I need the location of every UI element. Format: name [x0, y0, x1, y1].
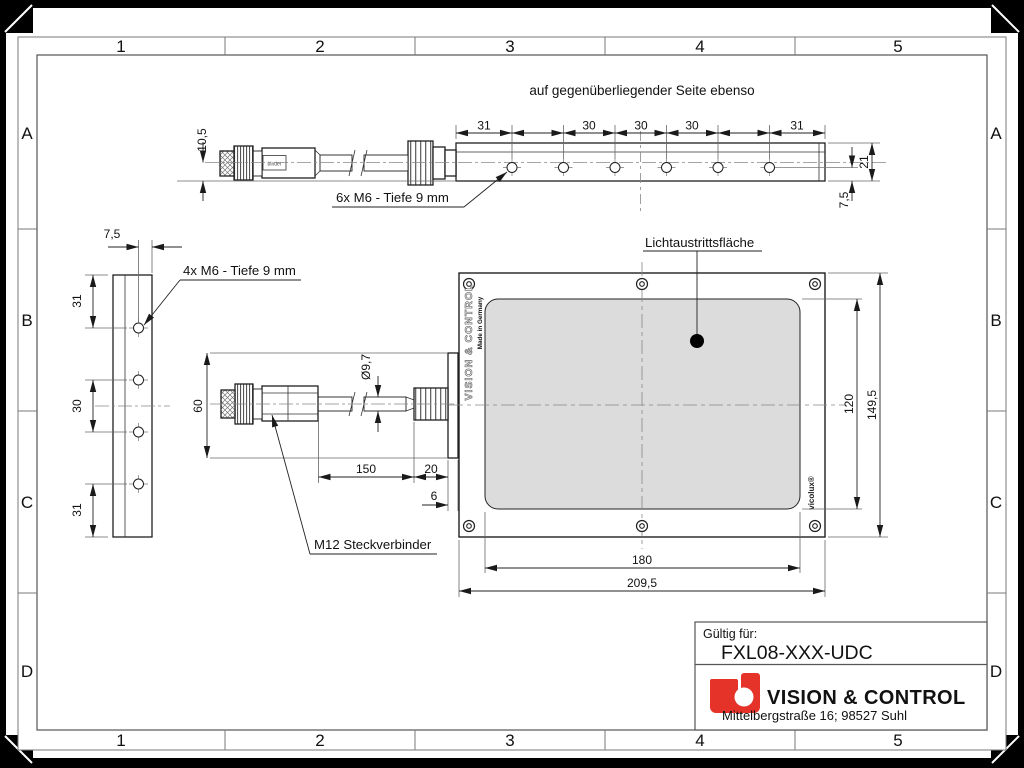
row-label: B: [21, 311, 32, 330]
col-label: 2: [315, 37, 324, 56]
dim-cable-len: 150: [356, 462, 376, 476]
cable: [320, 155, 352, 171]
col-label: 1: [116, 731, 125, 750]
company-logo: [710, 673, 760, 713]
m12-label: M12 Steckverbinder: [314, 537, 432, 552]
m6-top-label: 6x M6 - Tiefe 9 mm: [336, 190, 449, 205]
dim-pitch: 30: [634, 119, 648, 133]
m6-side-label: 4x M6 - Tiefe 9 mm: [183, 263, 296, 278]
dim-cable-dia: Ø9,7: [359, 354, 373, 380]
cad-drawing: 1 2 3 4 5 1 2 3 4 5 A B C D A B C D: [0, 0, 1024, 768]
knurled-ring: [234, 146, 253, 180]
col-label: 4: [695, 731, 704, 750]
col-label: 3: [505, 37, 514, 56]
col-label: 5: [893, 37, 902, 56]
dim-v: 30: [70, 399, 84, 413]
dim-height: 60: [191, 399, 205, 413]
dim-h-total: 149,5: [865, 390, 879, 420]
dim-gland-len: 20: [424, 462, 438, 476]
light-exit-label: Lichtaustrittsfläche: [645, 235, 754, 250]
dim-h-active: 120: [842, 394, 856, 414]
connector-ring: [253, 151, 262, 176]
col-label: 4: [695, 37, 704, 56]
dim-pitch: 31: [477, 119, 491, 133]
dim-pitch: 30: [582, 119, 596, 133]
top-view-outline: [220, 141, 825, 185]
dim-v: 31: [70, 294, 84, 308]
dim-pitch: 30: [685, 119, 699, 133]
mount-boss: [448, 353, 458, 458]
dim-lip: 6: [431, 489, 438, 503]
row-label: C: [990, 493, 1002, 512]
opposite-side-note: auf gegenüberliegender Seite ebenso: [529, 83, 754, 98]
company-address: Mittelbergstraße 16; 98527 Suhl: [722, 708, 907, 723]
title-block: Gültig für: FXL08-XXX-UDC VISION & CONTR…: [695, 622, 987, 730]
dim-width: 7,5: [104, 227, 121, 241]
gland-collar: [433, 147, 445, 179]
col-label: 2: [315, 731, 324, 750]
valid-for-label: Gültig für:: [703, 627, 757, 641]
light-exit-surface: [485, 299, 800, 509]
row-label: A: [990, 124, 1002, 143]
row-label: B: [990, 311, 1001, 330]
dim-w-active: 180: [632, 553, 652, 567]
row-label: A: [21, 124, 33, 143]
mount-lip: [445, 150, 456, 176]
part-number: FXL08-XXX-UDC: [721, 642, 873, 664]
light-exit-dot: [690, 334, 704, 348]
col-label: 5: [893, 731, 902, 750]
dim-height: 21: [857, 155, 871, 169]
m12-thread: [220, 151, 234, 176]
row-label: D: [990, 662, 1002, 681]
col-label: 1: [116, 37, 125, 56]
company-name: VISION & CONTROL: [767, 687, 966, 709]
dim-v: 31: [70, 503, 84, 517]
panel-brand-text: VISION & CONTROL: [463, 284, 475, 401]
col-label: 3: [505, 731, 514, 750]
cable: [364, 155, 408, 171]
dim-edge: 7,5: [837, 191, 851, 208]
vicolux-text: vicolux®: [807, 476, 816, 510]
connector-body: [262, 386, 318, 421]
row-label: C: [21, 493, 33, 512]
drawing-sheet: 1 2 3 4 5 1 2 3 4 5 A B C D A B C D: [0, 0, 1024, 768]
dim-pitch: 31: [790, 119, 804, 133]
cable-gland: [408, 141, 433, 185]
made-in-text: Made in Germany: [477, 296, 484, 349]
row-label: D: [21, 662, 33, 681]
dim-w-total: 209,5: [627, 576, 657, 590]
dim-offset: 10,5: [195, 128, 209, 152]
